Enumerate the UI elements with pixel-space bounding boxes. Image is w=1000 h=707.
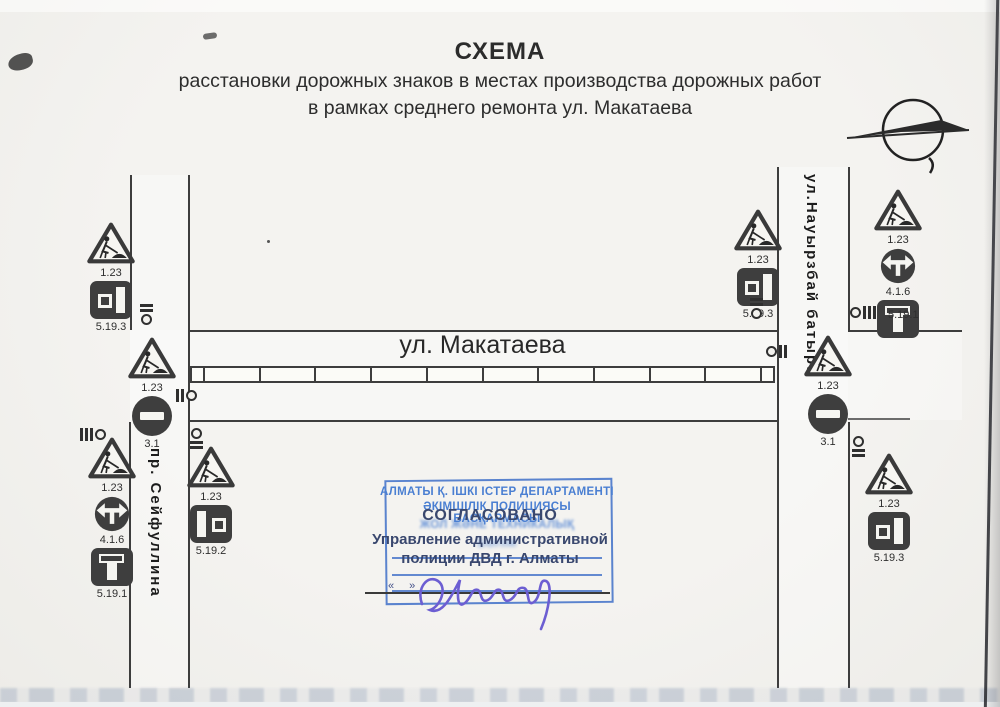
sign-code-label: 1.23 [817, 380, 838, 392]
sign-code-label: 5.19.3 [96, 321, 127, 333]
crosswalk-sign-icon [90, 281, 132, 319]
sign-code-label: 1.23 [200, 491, 221, 503]
sign-code-label: 3.1 [144, 438, 159, 450]
scan-top-light [0, 0, 1000, 12]
north-direction-arrow-icon [843, 86, 973, 178]
scheme-title: СХЕМА [0, 38, 1000, 66]
sign-post-marker [140, 304, 153, 325]
handwritten-signature [408, 552, 573, 632]
crosswalk-sign-icon [91, 548, 133, 586]
sign-code-label: 1.23 [878, 498, 899, 510]
sign-code-label: 1.23 [747, 254, 768, 266]
sign-code-label: 5.19.1 [888, 309, 919, 321]
no-entry-sign-icon [132, 396, 172, 436]
crosswalk-sign-icon [190, 505, 232, 543]
roadworks-sign-icon [186, 445, 236, 489]
street-label-makataeva: ул. Макатаева [188, 331, 777, 360]
approved-org-line-1: Управление административной [340, 531, 640, 548]
sign-code-label: 1.23 [101, 482, 122, 494]
nauryzbai-east-edge-lower [848, 422, 850, 688]
sign-post-marker [766, 345, 787, 358]
sign-code-label: 4.1.6 [100, 534, 124, 546]
scanned-scheme-page: СХЕМА расстановки дорожных знаков в мест… [0, 0, 1000, 707]
no-entry-sign-icon [808, 394, 848, 434]
paper-edge-shadow [984, 0, 1000, 707]
makataeva-south-edge-east [848, 418, 910, 420]
sign-group-w-mid: 1.23 3.1 [124, 336, 180, 450]
sign-code-label: 4.1.6 [886, 286, 910, 298]
sign-code-label: 5.19.2 [196, 545, 227, 557]
roadworks-sign-icon [87, 436, 137, 480]
crosswalk-sign-icon [868, 512, 910, 550]
scan-smudge [267, 240, 270, 243]
sign-code-label: 5.19.1 [97, 588, 128, 600]
sign-code-label: 3.1 [820, 436, 835, 448]
scan-bottom-light [0, 702, 1000, 707]
sign-group-e-mid: 1.23 3.1 [800, 334, 856, 448]
sign-code-label: 1.23 [141, 382, 162, 394]
roadworks-sign-icon [864, 452, 914, 496]
sign-group-se: 1.23 5.19.3 [861, 452, 917, 564]
sign-group-nw: 1.23 5.19.3 [83, 221, 139, 333]
roadworks-sign-icon [127, 336, 177, 380]
pass-left-right-sign-icon [880, 248, 916, 284]
scan-bleedthrough-band [0, 688, 1000, 703]
sign-code-label: 1.23 [100, 267, 121, 279]
roadworks-sign-icon [803, 334, 853, 378]
street-label-seifullina: пр. Сейфуллина [147, 448, 164, 598]
approved-label: СОГЛАСОВАНО [340, 507, 640, 525]
makataeva-south-edge [190, 420, 777, 422]
roadworks-sign-icon [733, 208, 783, 252]
sign-post-marker [176, 389, 197, 402]
roadworks-sign-icon [86, 221, 136, 265]
sign-group-sw-west: 1.23 4.1.6 5.19.1 [84, 436, 140, 600]
sign-code-label: 5.19.3 [874, 552, 905, 564]
stamp-text-kz-1: АЛМАТЫ Қ. ІШКІ ІСТЕР ДЕПАРТАМЕНТІ [380, 486, 614, 498]
roadworks-sign-icon [873, 188, 923, 232]
sign-code-label: 1.23 [887, 234, 908, 246]
sign-group-sw-east: 1.23 5.19.2 [183, 445, 239, 557]
sign-post-marker [850, 306, 876, 319]
work-zone-strip [190, 366, 775, 383]
sign-post-marker [750, 298, 763, 319]
pass-left-right-sign-icon [94, 496, 130, 532]
